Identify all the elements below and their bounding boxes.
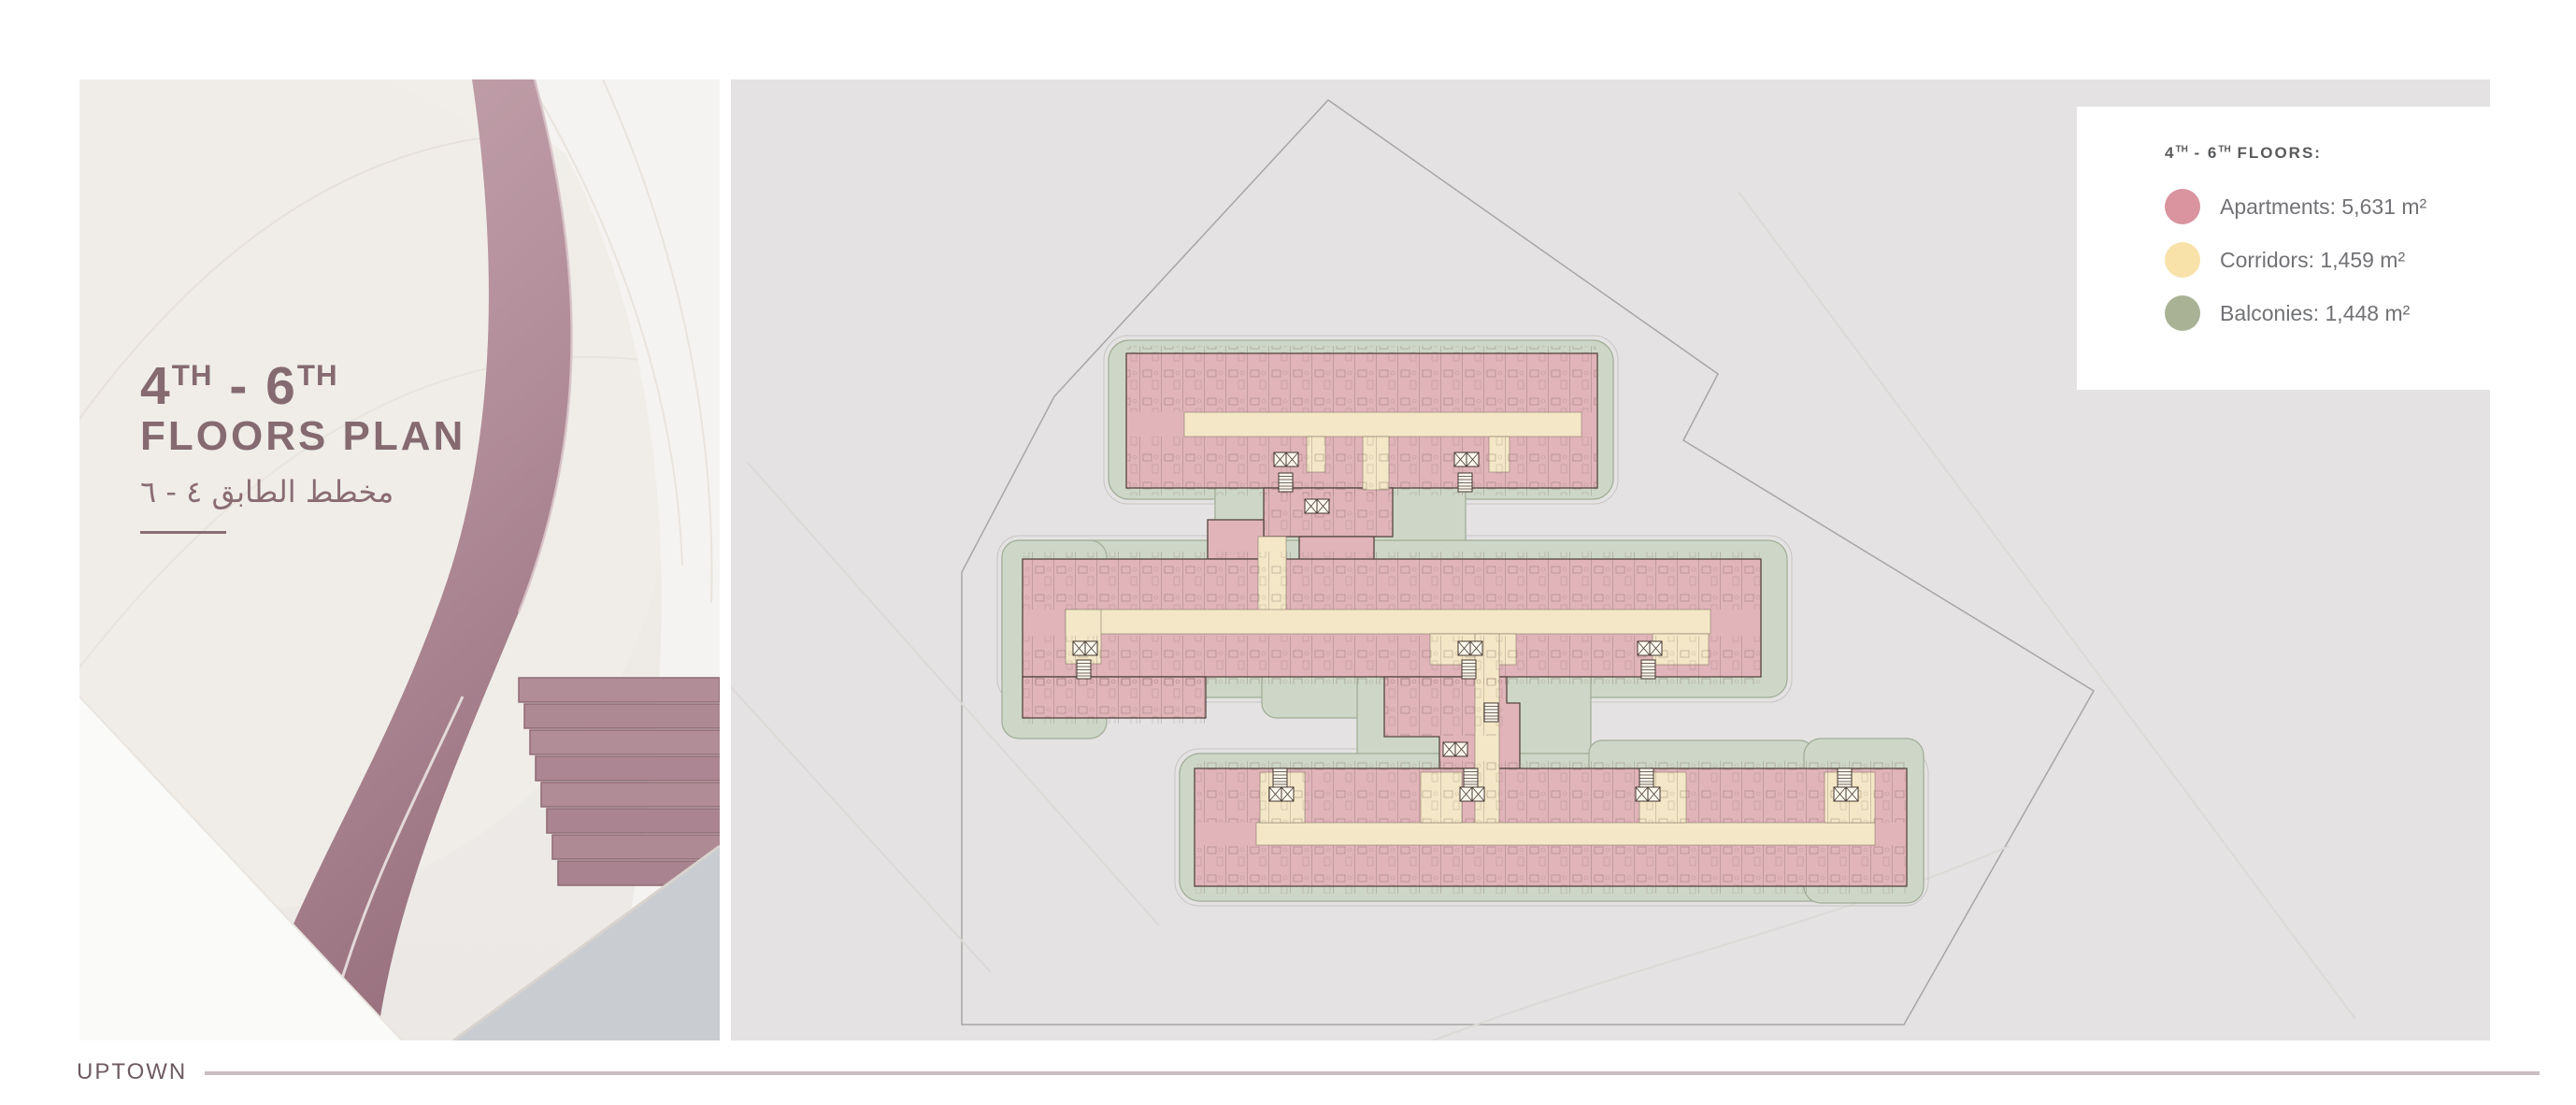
legend-box: 4TH - 6TH FLOORS: Apartments: 5,631 m² C…	[2077, 107, 2524, 390]
staircase-photo-art	[79, 79, 720, 1040]
title-arabic: مخطط الطابق ٤ - ٦	[140, 476, 465, 509]
apartments-color-swatch	[2165, 189, 2200, 224]
title-floors-plan: FLOORS PLAN	[140, 413, 465, 461]
page-title: 4TH - 6TH FLOORS PLAN مخطط الطابق ٤ - ٦	[140, 360, 465, 534]
legend-header: 4TH - 6TH FLOORS:	[2165, 144, 2524, 163]
corridors-color-swatch	[2165, 242, 2200, 278]
footer: UPTOWN	[77, 1059, 2540, 1085]
legend-item-apartments: Apartments: 5,631 m²	[2165, 189, 2524, 224]
title-floors-range: 4TH - 6TH	[140, 360, 465, 413]
corridors-label: Corridors: 1,459 m²	[2220, 248, 2405, 273]
balconies-color-swatch	[2165, 295, 2200, 331]
footer-rule	[205, 1071, 2540, 1075]
title-underline	[140, 531, 226, 534]
staircase-photo: 4TH - 6TH FLOORS PLAN مخطط الطابق ٤ - ٦	[79, 79, 720, 1040]
apartments-label: Apartments: 5,631 m²	[2220, 194, 2426, 220]
legend-item-balconies: Balconies: 1,448 m²	[2165, 295, 2524, 331]
brochure-page: 4TH - 6TH FLOORS PLAN مخطط الطابق ٤ - ٦	[0, 0, 2576, 1105]
brand-name: UPTOWN	[77, 1059, 187, 1085]
legend-item-corridors: Corridors: 1,459 m²	[2165, 242, 2524, 278]
balconies-label: Balconies: 1,448 m²	[2220, 301, 2410, 326]
